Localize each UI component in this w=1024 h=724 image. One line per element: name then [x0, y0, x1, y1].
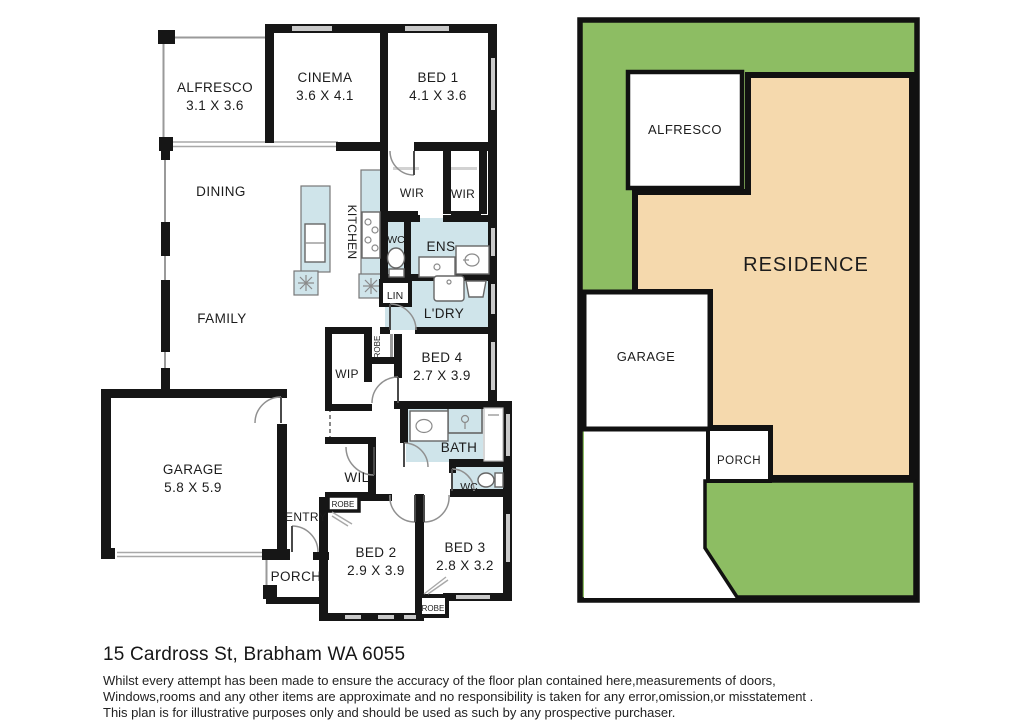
cinema-label: CINEMA: [298, 70, 353, 85]
site-residence-label: RESIDENCE: [743, 254, 869, 276]
address: 15 Cardross St, Brabham WA 6055: [103, 644, 953, 666]
disclaimer-line-1: Whilst every attempt has been made to en…: [103, 673, 953, 689]
bed1-label: BED 1: [417, 70, 458, 85]
wir2-opening: [451, 167, 477, 170]
front-garden: [705, 481, 915, 597]
family-label: FAMILY: [197, 311, 246, 326]
entry-label: ENTRY: [285, 510, 327, 524]
bed4-dims: 2.7 X 3.9: [413, 368, 471, 383]
footer: 15 Cardross St, Brabham WA 6055 Whilst e…: [103, 644, 953, 721]
bath-niche: [484, 408, 503, 461]
cooktop: [362, 212, 380, 258]
robe1-slider: [390, 334, 393, 358]
lin-label: LIN: [387, 290, 403, 302]
bed1-dims: 4.1 X 3.6: [409, 88, 467, 103]
wc2-label: WC: [460, 481, 478, 493]
floorplan-page: ALFRESCO 3.1 X 3.6 CINEMA 3.6 X 4.1 BED …: [0, 0, 1024, 724]
bed4-label: BED 4: [421, 350, 462, 365]
alfresco-dims: 3.1 X 3.6: [186, 98, 244, 113]
bed2-label: BED 2: [355, 545, 396, 560]
garage-dims: 5.8 X 5.9: [164, 480, 222, 495]
wir1-label: WIR: [400, 186, 424, 200]
wc1-toilet-icon: [388, 248, 405, 268]
cinema-dims: 3.6 X 4.1: [296, 88, 354, 103]
wir2-label: WIR: [451, 187, 475, 201]
laundry-basket: [466, 281, 486, 297]
bed2-dims: 2.9 X 3.9: [347, 563, 405, 578]
wil-label: WIL: [344, 470, 369, 485]
floor-plan: ALFRESCO 3.1 X 3.6 CINEMA 3.6 X 4.1 BED …: [101, 24, 512, 621]
ldry-label: L'DRY: [424, 306, 464, 321]
ens-vanity: [456, 246, 489, 274]
bed3-dims: 2.8 X 3.2: [436, 558, 494, 573]
ens-shower: [419, 257, 455, 277]
site-porch-label: PORCH: [717, 455, 761, 467]
alfresco-label: ALFRESCO: [177, 80, 253, 95]
kitchen-label: KITCHEN: [345, 205, 359, 260]
robe2-label: ROBE: [332, 500, 355, 509]
wc1-label: WC: [387, 234, 405, 246]
porch-label: PORCH: [271, 569, 322, 584]
site-garage-label: GARAGE: [617, 349, 676, 364]
bed3-label: BED 3: [444, 540, 485, 555]
plans-svg: ALFRESCO 3.1 X 3.6 CINEMA 3.6 X 4.1 BED …: [0, 0, 1024, 724]
ens-label: ENS: [427, 239, 456, 254]
dining-label: DINING: [196, 184, 246, 199]
disclaimer-line-2: Windows,rooms and any other items are ap…: [103, 689, 953, 705]
wc2-toilet-icon: [478, 473, 494, 487]
garage-label: GARAGE: [163, 462, 223, 477]
robe1-label: ROBE: [373, 336, 382, 359]
site-plan: ALFRESCO RESIDENCE GARAGE PORCH: [580, 20, 917, 600]
site-alfresco-label: ALFRESCO: [648, 122, 722, 137]
robe3-label: ROBE: [422, 604, 445, 613]
disclaimer-line-3: This plan is for illustrative purposes o…: [103, 705, 953, 721]
bath-label: BATH: [441, 440, 478, 455]
wip-label: WIP: [335, 367, 359, 381]
bath-shower: [448, 407, 482, 433]
